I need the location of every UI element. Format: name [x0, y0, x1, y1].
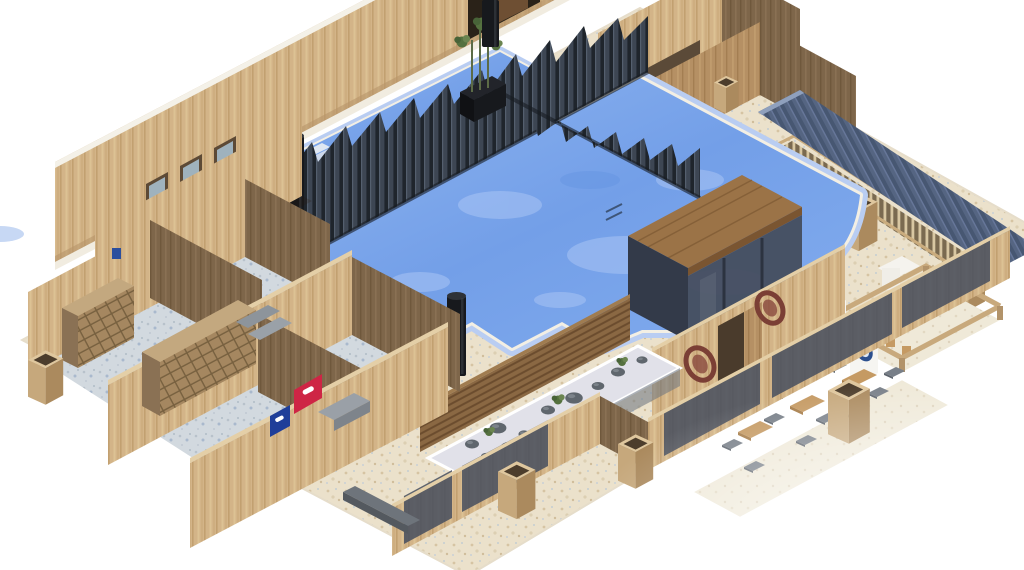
bin [112, 248, 121, 259]
render-canvas [0, 0, 1024, 570]
black-column [482, 0, 499, 47]
floorplan-3d-render [0, 0, 1024, 570]
